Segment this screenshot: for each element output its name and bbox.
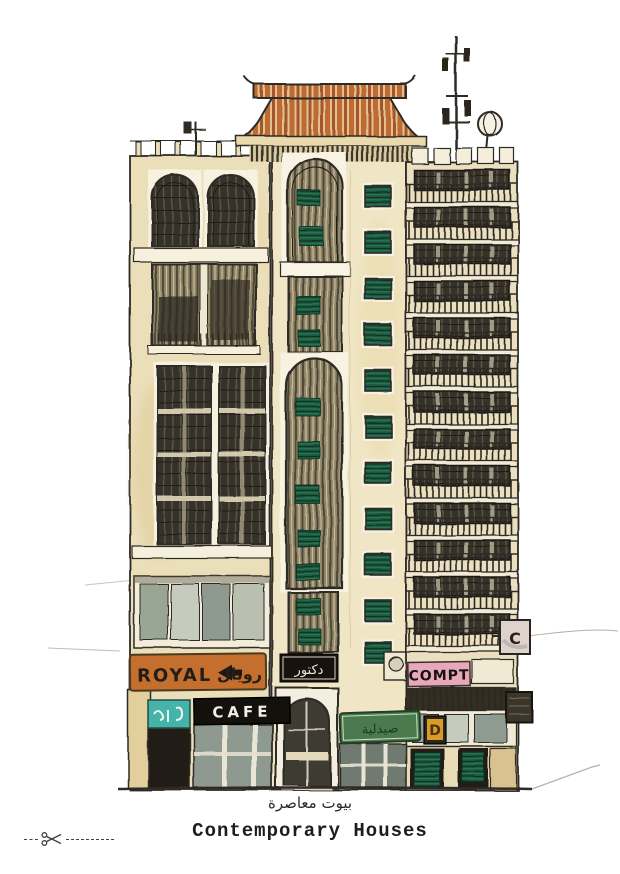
teal-shop-sign (148, 700, 190, 728)
center-window-base (288, 592, 338, 652)
artwork-page: ROYAL رويال دكتور COMPT CAFE صيدلية D (0, 0, 620, 874)
c-badge-text: C (509, 629, 521, 648)
center-arch-window-lower (280, 352, 348, 592)
cafe-sign: CAFE (194, 697, 290, 725)
mezzanine-windows (134, 576, 270, 648)
rooftop-antenna-left-icon (184, 122, 206, 155)
compt-sign: COMPT (408, 661, 470, 686)
side-box-sign (506, 692, 532, 722)
royal-sign-arabic-text: رويال (217, 664, 262, 683)
center-arch-window-top (280, 152, 350, 276)
cut-dash-left (24, 839, 38, 840)
pagoda-roof (236, 76, 426, 162)
cut-dash-right (66, 839, 114, 840)
caption-arabic: بيوت معاصرة (0, 794, 620, 812)
pharmacy-storefront (340, 744, 406, 788)
compt-sign-text: COMPT (408, 667, 469, 684)
balcony-floors (406, 170, 518, 652)
center-window-mid (288, 276, 342, 352)
tall-window-pair (153, 362, 269, 548)
royal-sign-latin-text: ROYAL (137, 665, 212, 687)
pharmacy-sign: صيدلية (340, 711, 421, 744)
wire-line (528, 630, 618, 636)
doctor-sign-text: دكتور (294, 663, 324, 678)
cut-here-mark (24, 831, 114, 847)
big-shuttered-window (148, 264, 260, 354)
cafe-sign-text: CAFE (212, 702, 271, 721)
right-storefront (406, 688, 516, 790)
scissors-icon (41, 831, 63, 847)
d-badge: D (424, 716, 446, 744)
royal-sign: ROYAL رويال (130, 653, 266, 690)
building-illustration: ROYAL رويال دكتور COMPT CAFE صيدلية D (0, 0, 620, 800)
d-badge-text: D (429, 723, 441, 739)
pharmacy-sign-text: صيدلية (362, 721, 399, 737)
doctor-sign: دكتور (280, 654, 338, 682)
ac-unit (384, 652, 408, 680)
antenna-mast-icon (442, 36, 471, 150)
